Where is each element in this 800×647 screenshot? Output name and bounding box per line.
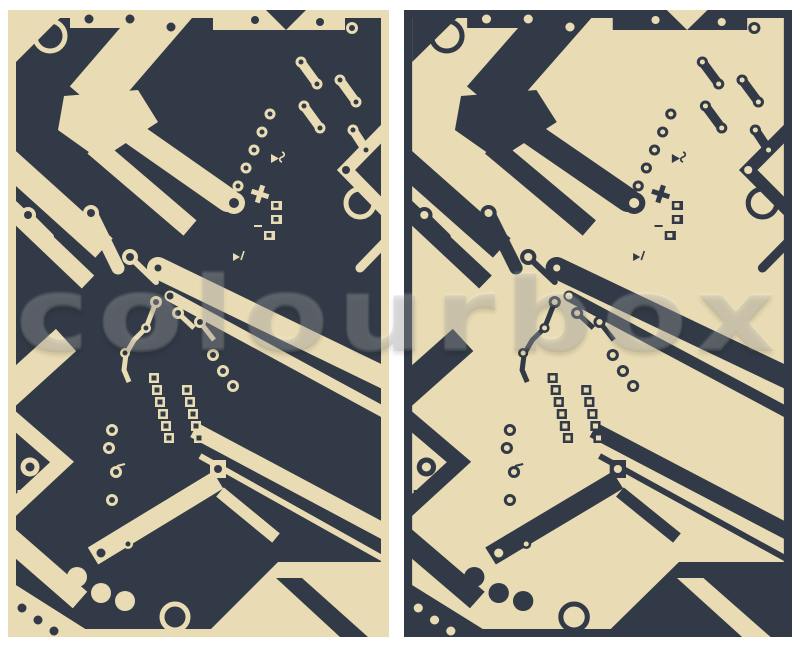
stock-image-canvas: colourbox <box>0 0 800 647</box>
pcb-pattern-dark-variant <box>8 10 389 637</box>
pcb-pattern-light-variant <box>404 10 792 637</box>
pcb-artwork-light-svg <box>404 10 792 637</box>
pcb-artwork-dark-svg <box>8 10 389 637</box>
